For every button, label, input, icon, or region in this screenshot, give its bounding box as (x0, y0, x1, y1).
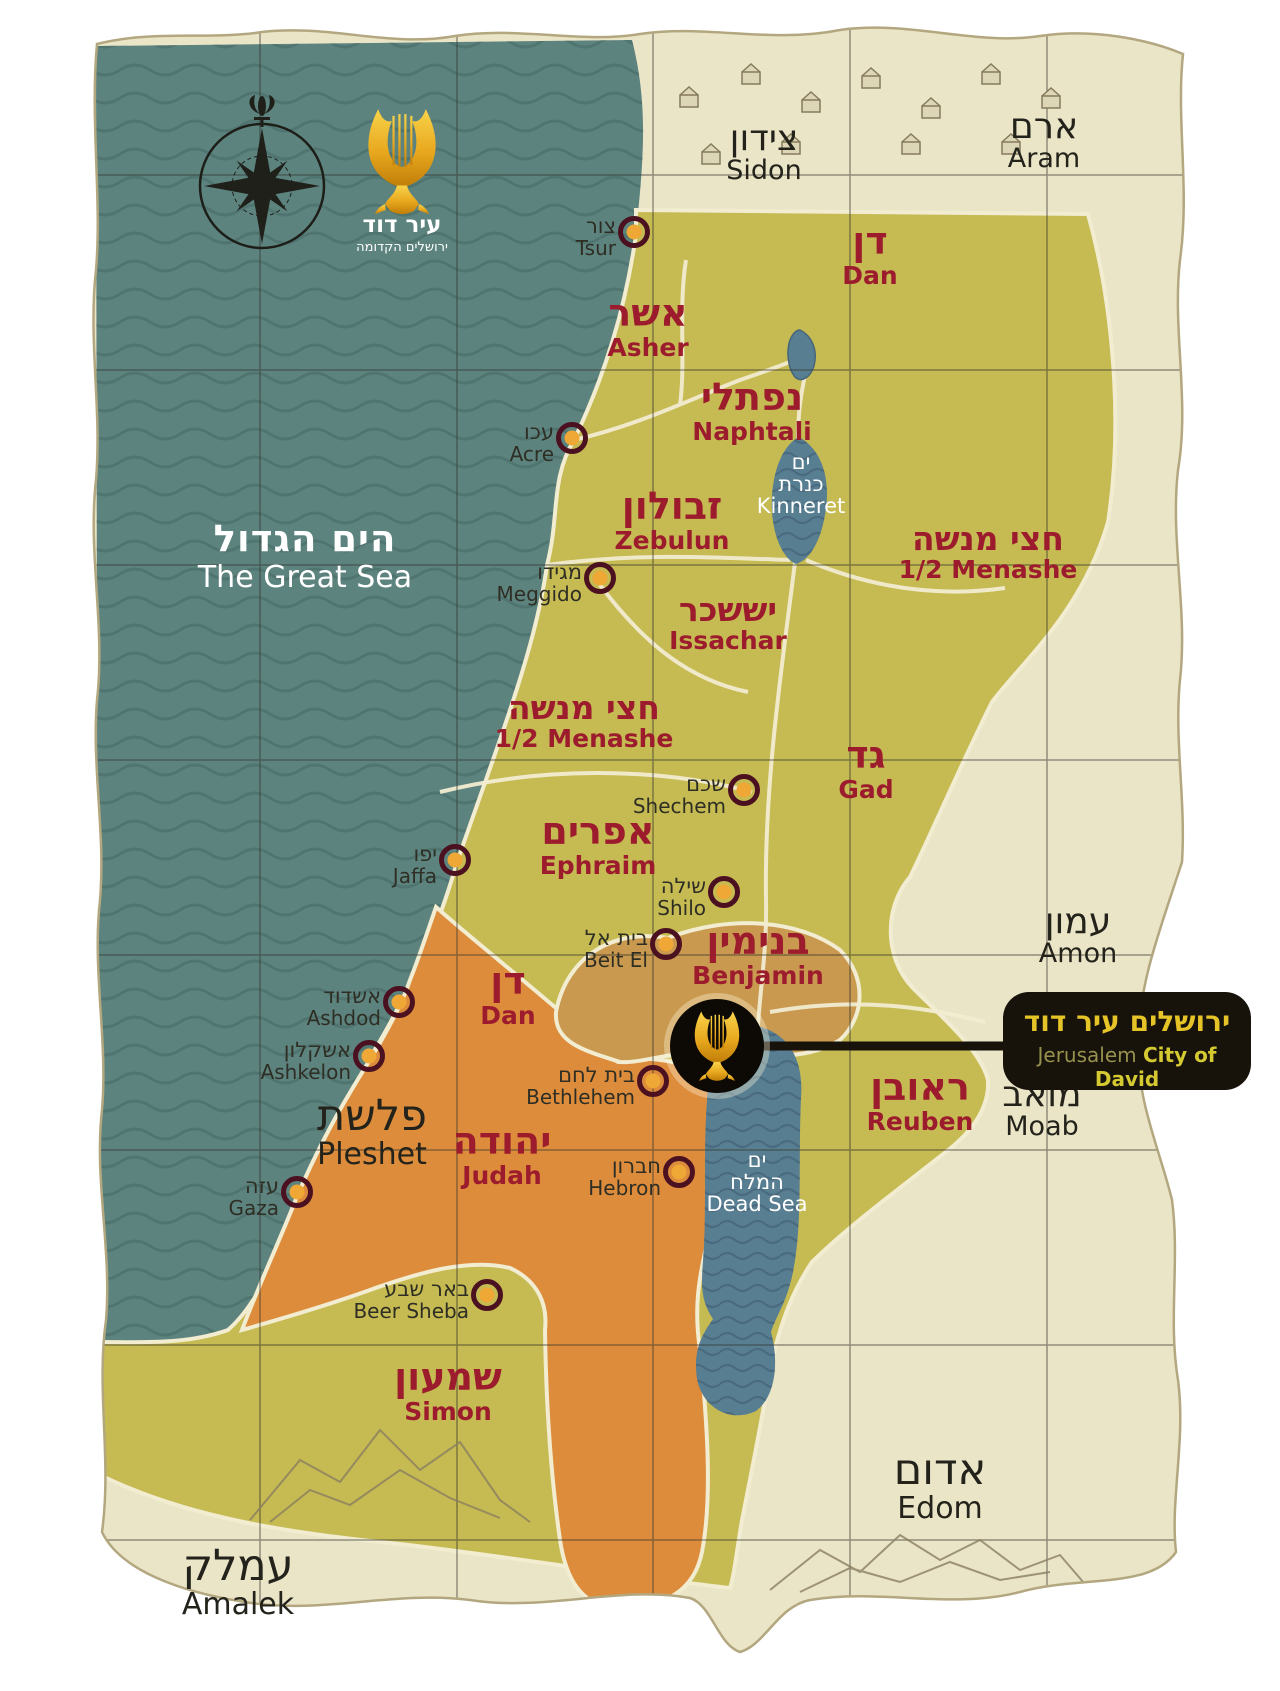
great-sea-label: הים הגדול The Great Sea (155, 520, 455, 594)
tribe-label-zebulun: זבולוןZebulun (542, 487, 802, 554)
neighbor-label-pleshet: פלשתPleshet (242, 1094, 502, 1170)
tribe-label-naphtali: נפתליNaphtali (622, 378, 882, 445)
tribe-label-ephraim: אפריםEphraim (468, 812, 728, 879)
city-label-bethlehem: בית לחםBethlehem (485, 1065, 635, 1108)
tribe-label-menashe-west: חצי מנשה1/2 Menashe (454, 691, 714, 752)
neighbor-label-amon: עמוןAmon (948, 903, 1208, 969)
city-label-shechem: שכםShechem (576, 774, 726, 817)
neighbor-label-edom: אדוםEdom (810, 1448, 1070, 1524)
tribe-label-benjamin: בנימיןBenjamin (628, 922, 888, 989)
city-label-gaza: עזהGaza (129, 1176, 279, 1219)
city-label-ashdod: אשדודAshdod (231, 986, 381, 1029)
neighbor-label-amalek: עמלקAmalek (108, 1544, 368, 1620)
city-label-jaffa: יפוJaffa (287, 844, 437, 887)
tribes-of-israel-map: עיר דוד ירושלים הקדומה הים הגדול The Gre… (0, 0, 1280, 1691)
jerusalem-callout-hebrew: ירושלים עיר דוד (1003, 1005, 1251, 1038)
jerusalem-callout: ירושלים עיר דוד Jerusalem City of David (1003, 992, 1251, 1090)
tribe-label-simon: שמעוןSimon (318, 1358, 578, 1425)
neighbor-label-sidon: צידוןSidon (634, 120, 894, 186)
city-label-shilo: שילהShilo (556, 876, 706, 919)
city-label-meggido: מגידוMeggido (432, 562, 582, 605)
city-label-beer-sheba: באר שבעBeer Sheba (319, 1279, 469, 1322)
tribe-label-dan-south: דןDan (378, 962, 638, 1029)
tribe-label-dan-north: דןDan (740, 222, 1000, 289)
neighbor-label-aram: ארםAram (914, 108, 1174, 174)
city-label-hebron: חברוןHebron (511, 1156, 661, 1199)
tribe-label-gad: גדGad (736, 736, 996, 803)
jerusalem-marker (664, 993, 770, 1099)
tribe-label-asher: אשרAsher (518, 294, 778, 361)
city-label-acre: עכוAcre (404, 422, 554, 465)
dead-sea-label: ים המלח Dead Sea (687, 1150, 827, 1215)
tribe-label-menashe-east: חצי מנשה1/2 Menashe (858, 522, 1118, 583)
city-label-ashkelon: אשקלוןAshkelon (201, 1040, 351, 1083)
city-label-beit-el: בית אלBeit El (498, 928, 648, 971)
tribe-label-issachar: יששכרIssachar (598, 593, 858, 654)
city-label-tsur: צורTsur (466, 216, 616, 259)
jerusalem-callout-english: Jerusalem City of David (1003, 1043, 1251, 1091)
